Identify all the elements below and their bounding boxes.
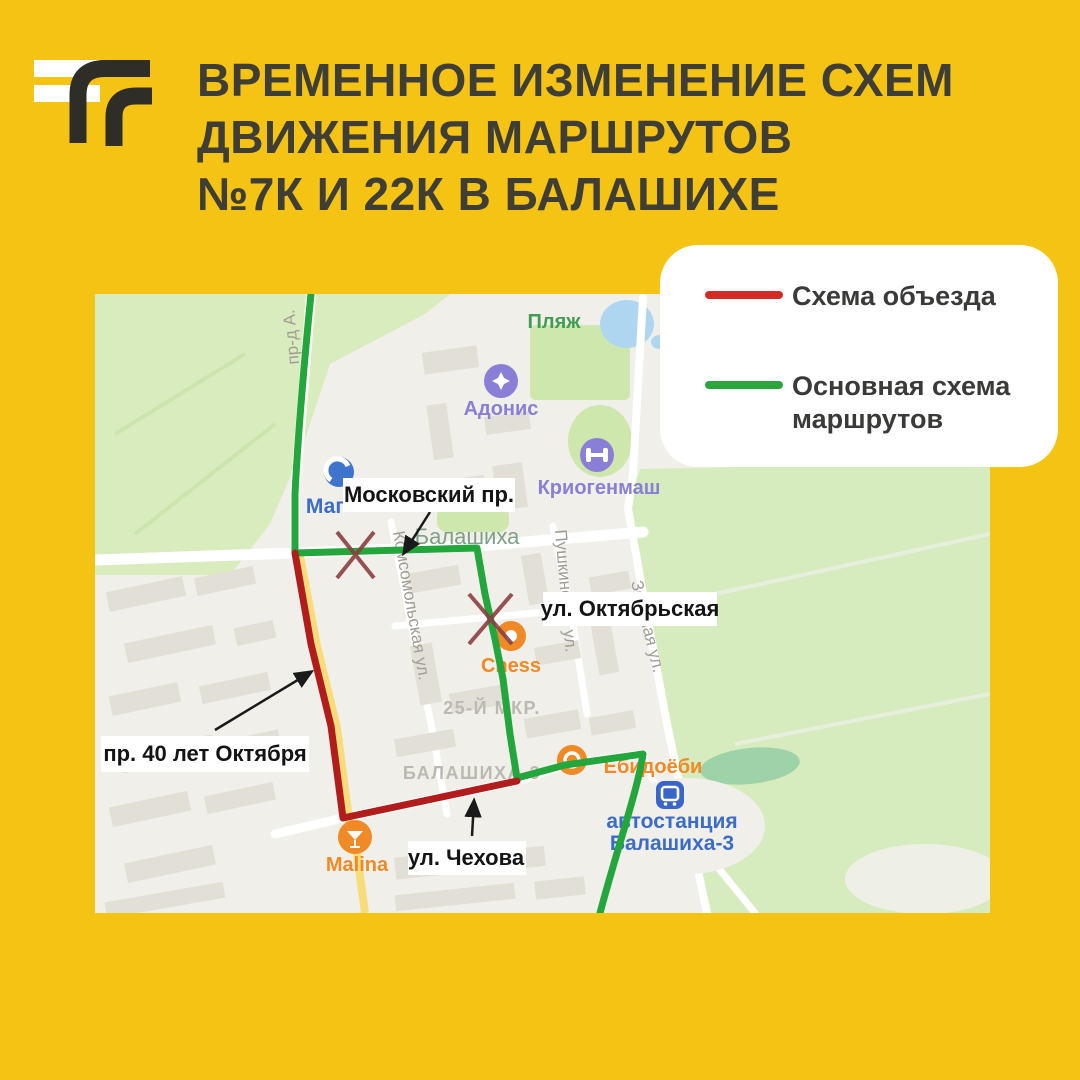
legend-main-label-line2: маршрутов bbox=[792, 403, 1010, 436]
mostransavto-logo bbox=[28, 50, 168, 158]
callout-chekhova-label: ул. Чехова bbox=[408, 845, 525, 870]
callout-oktyabrskaya: ул. Октябрьская bbox=[541, 592, 720, 626]
poster: { "page": { "background": "#F5C313" }, "… bbox=[0, 0, 1080, 1080]
legend-main-label: Основная схема маршрутов bbox=[792, 370, 1010, 436]
legend-detour-swatch bbox=[705, 291, 783, 299]
callout-oktyabrskaya-label: ул. Октябрьская bbox=[541, 596, 720, 621]
poi-plyazh-label: Пляж bbox=[528, 311, 582, 333]
legend-main-label-line1: Основная схема bbox=[792, 370, 1010, 403]
poi-plyazh: Пляж bbox=[528, 311, 582, 333]
title-line-2: ДВИЖЕНИЯ МАРШРУТОВ bbox=[197, 109, 1057, 166]
bus-station-icon bbox=[656, 781, 684, 809]
callout-pr40let-label: пр. 40 лет Октября bbox=[103, 741, 306, 766]
legend-card: Схема объезда Основная схема маршрутов bbox=[660, 245, 1058, 467]
bus-wheel-right bbox=[673, 802, 677, 806]
poi-kriogenmash-label: Криогенмаш bbox=[538, 477, 661, 499]
bus-wheel-left bbox=[664, 802, 668, 806]
bus-station-label-2: Балашиха-3 bbox=[610, 832, 734, 855]
poi-adonis-label: Адонис bbox=[464, 398, 539, 420]
logo-black-curves bbox=[78, 69, 152, 147]
title-line-3: №7К И 22К В БАЛАШИХЕ bbox=[197, 166, 1057, 223]
poi-chess-label: Chess bbox=[481, 655, 541, 677]
callout-moskovsky-label: Московский пр. bbox=[344, 482, 514, 507]
legend-detour-label: Схема объезда bbox=[792, 280, 996, 313]
district-25-mkr: 25-Й МКР. bbox=[443, 697, 541, 718]
poi-malina-label: Malina bbox=[326, 854, 389, 876]
legend-main-swatch bbox=[705, 381, 783, 389]
page-title: ВРЕМЕННОЕ ИЗМЕНЕНИЕ СХЕМ ДВИЖЕНИЯ МАРШРУ… bbox=[197, 52, 1057, 223]
poi-magnit-label: Маг bbox=[306, 495, 344, 518]
title-line-1: ВРЕМЕННОЕ ИЗМЕНЕНИЕ СХЕМ bbox=[197, 52, 1057, 109]
